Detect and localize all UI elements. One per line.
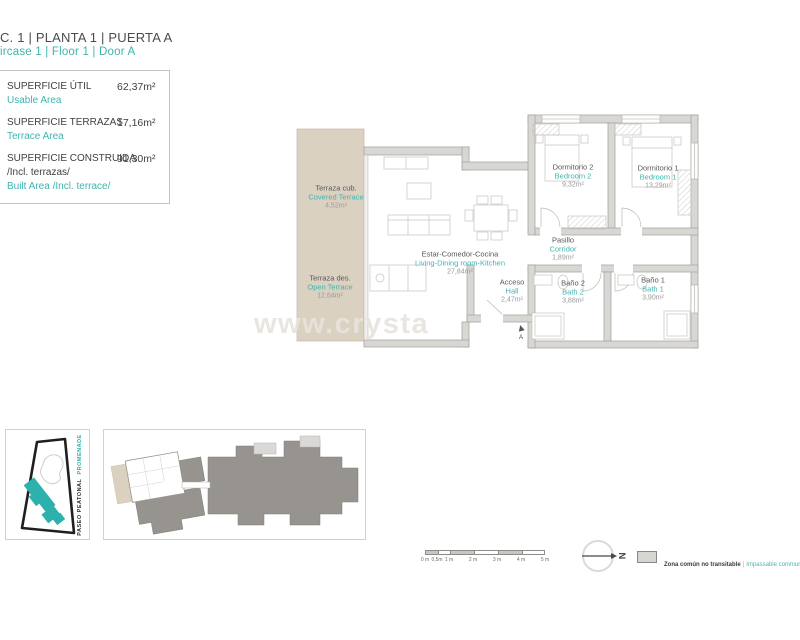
scale-label: 0 m <box>421 557 429 563</box>
scale-label: 5 m <box>541 557 549 563</box>
scale-tick <box>474 551 475 554</box>
scale-tick <box>498 551 499 554</box>
pool-outline <box>41 455 63 484</box>
room-name-en: Corridor <box>549 245 576 254</box>
scale-tick <box>522 551 523 554</box>
highlighted-unit <box>125 452 184 503</box>
scale-label: 4 m <box>517 557 525 563</box>
room-name-en: Bedroom 2 <box>553 172 594 181</box>
room-label-bedroom2: Dormitorio 2 Bedroom 2 9,32m² <box>553 162 594 190</box>
scale-tick <box>450 551 451 554</box>
room-name-es: Dormitorio 1 <box>638 163 679 172</box>
summary-label-construida-en: Built Area /Incl. terrace/ <box>7 181 110 192</box>
legend-separator: | <box>743 562 745 568</box>
room-label-corridor: Pasillo Corridor 1,89m² <box>549 235 576 263</box>
floor-plan-page: C. 1 | PLANTA 1 | PUERTA A ircase 1 | Fl… <box>0 0 800 640</box>
summary-label-util-en: Usable Area <box>7 95 61 106</box>
room-name-es: Pasillo <box>549 235 576 244</box>
room-name-en: Bath 1 <box>641 285 665 294</box>
page-title-en: ircase 1 | Floor 1 | Door A <box>0 46 135 58</box>
scale-bar: 0 m 0,5m 1 m 2 m 3 m 4 m 5 m <box>425 550 547 566</box>
scale-segment <box>450 551 474 554</box>
room-area: 13,29m² <box>638 182 679 191</box>
summary-label-construida-2: /Incl. terrazas/ <box>7 167 70 178</box>
scale-segment <box>498 551 522 554</box>
north-label: N <box>617 552 627 559</box>
scale-label: 1 m <box>445 557 453 563</box>
summary-value-construida: 91,30m² <box>117 153 156 165</box>
room-name-es: Acceso <box>500 277 525 286</box>
room-name-en: Covered Terrace <box>308 193 363 202</box>
room-area: 9,32m² <box>553 181 594 190</box>
street-name-en: PROMENADE <box>77 434 83 474</box>
room-name-es: Dormitorio 2 <box>553 162 594 171</box>
summary-label-terrazas-en: Terrace Area <box>7 131 64 142</box>
summary-label-terrazas: SUPERFICIE TERRAZAS <box>7 117 123 128</box>
room-name-en: Bath 2 <box>561 288 585 297</box>
room-label-bath1: Baño 1 Bath 1 3,90m² <box>641 275 665 303</box>
room-label-bedroom1: Dormitorio 1 Bedroom 1 13,29m² <box>638 163 679 191</box>
entrance-label: A <box>514 335 528 343</box>
surface-summary-box: SUPERFICIE ÚTIL 62,37m² Usable Area SUPE… <box>0 70 170 204</box>
legend-swatch <box>637 551 657 563</box>
scale-label: 3 m <box>493 557 501 563</box>
scale-label: 2 m <box>469 557 477 563</box>
room-area: 27,84m² <box>415 268 505 277</box>
room-label-hall: Acceso Hall 2,47m² <box>500 277 525 305</box>
highlighted-unit-group <box>110 448 212 537</box>
room-label-bath2: Baño 2 Bath 2 3,88m² <box>561 278 585 306</box>
page-title-es: C. 1 | PLANTA 1 | PUERTA A <box>0 30 172 45</box>
room-name-es: Estar-Comedor-Cocina <box>415 249 505 258</box>
room-name-es: Terraza des. <box>307 273 352 282</box>
room-name-en: Open Terrace <box>307 283 352 292</box>
key-plan-drawing <box>104 430 363 537</box>
legend-label-es: Zona común no transitable <box>664 562 741 568</box>
walkway-connector <box>182 482 210 488</box>
room-area: 3,90m² <box>641 294 665 303</box>
entrance-arrow-icon <box>517 324 524 331</box>
watermark-text: www.crysta <box>254 308 429 341</box>
room-name-en: Hall <box>500 287 525 296</box>
summary-value-util: 62,37m² <box>117 81 156 93</box>
key-plan-panel <box>103 429 366 540</box>
room-label-open-terrace: Terraza des. Open Terrace 12,64m² <box>307 273 352 301</box>
building-mass <box>208 441 358 525</box>
summary-label-util: SUPERFICIE ÚTIL <box>7 81 91 92</box>
legend-text: Zona común no transitable|Impassable com… <box>664 553 800 571</box>
scale-bar-track <box>425 550 545 555</box>
room-label-covered-terrace: Terraza cub. Covered Terrace 4,52m² <box>308 183 363 211</box>
scale-label: 0,5m <box>431 557 442 563</box>
summary-value-terrazas: 17,16m² <box>117 117 156 129</box>
room-area: 1,89m² <box>549 254 576 263</box>
room-name-en: Bedroom 1 <box>638 173 679 182</box>
room-name-es: Baño 2 <box>561 278 585 287</box>
entrance-marker: A <box>514 319 528 343</box>
room-name-es: Baño 1 <box>641 275 665 284</box>
room-area: 12,64m² <box>307 292 352 301</box>
site-plan-panel: PASEO PEATONAL PROMENADE <box>5 429 90 540</box>
room-area: 4,52m² <box>308 202 363 211</box>
room-label-living: Estar-Comedor-Cocina Living-Dining room-… <box>415 249 505 277</box>
scale-tick <box>438 551 439 554</box>
legend-label-en: Impassable communal area <box>746 562 800 568</box>
scale-segment <box>426 551 438 554</box>
site-plan-drawing <box>6 430 87 537</box>
north-arrow: N <box>580 538 636 574</box>
room-name-es: Terraza cub. <box>308 183 363 192</box>
room-area: 3,88m² <box>561 297 585 306</box>
street-label: PASEO PEATONAL PROMENADE <box>77 434 83 535</box>
room-area: 2,47m² <box>500 296 525 305</box>
light-roof-patch <box>254 443 276 454</box>
light-roof-patch <box>300 436 320 447</box>
room-name-en: Living-Dining room-Kitchen <box>415 259 505 268</box>
street-name-es: PASEO PEATONAL <box>77 479 83 536</box>
